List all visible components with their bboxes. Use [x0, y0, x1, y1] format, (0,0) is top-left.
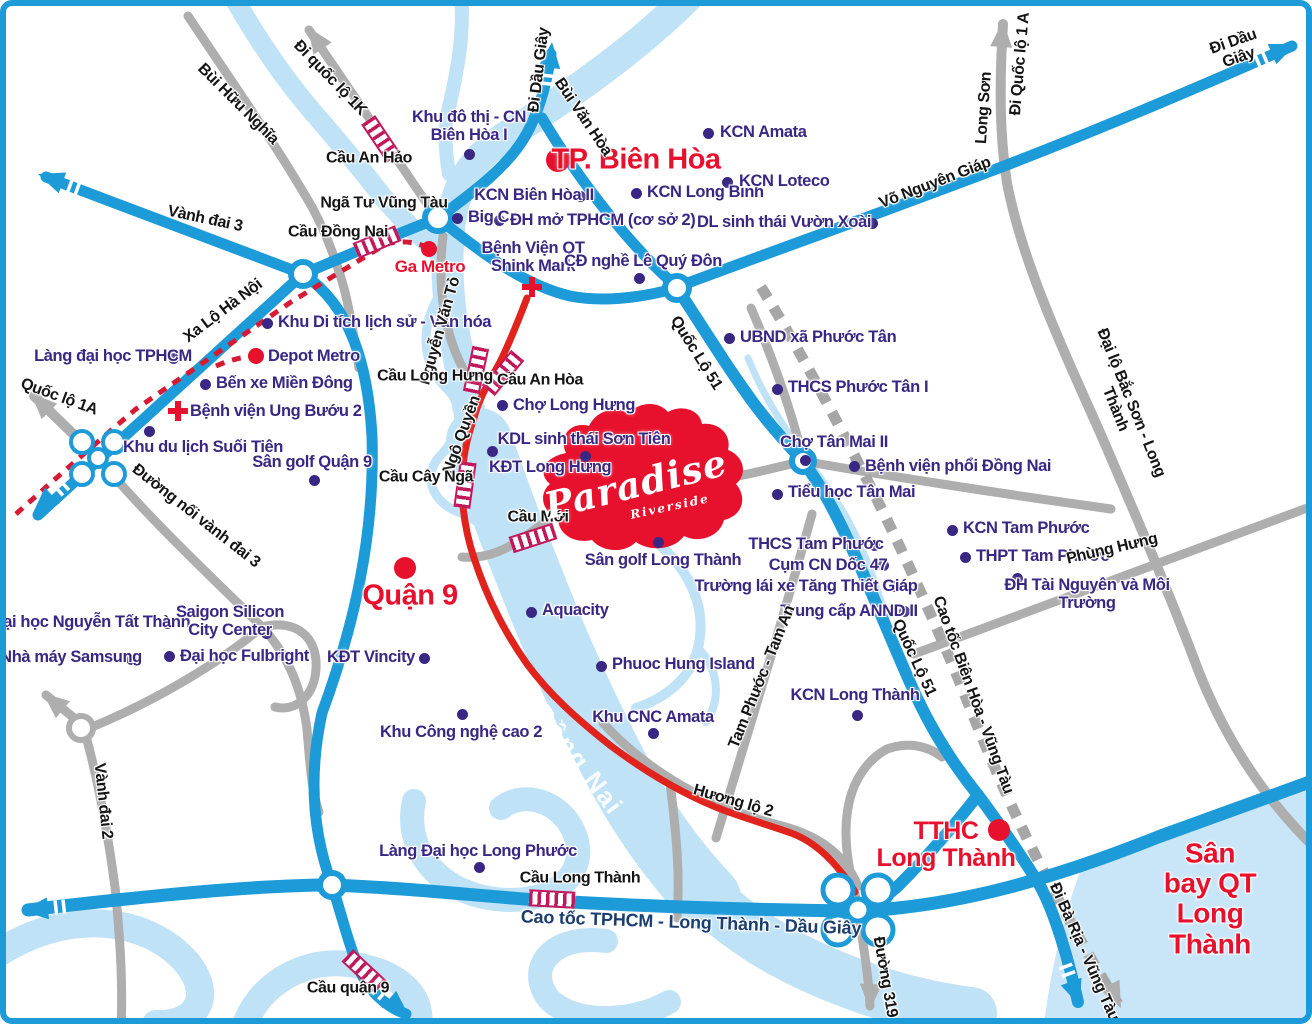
map-graphic	[6, 6, 1306, 1018]
airport-area	[1044, 772, 1306, 1018]
paradise-logo-shape	[543, 404, 743, 550]
map-canvas: Khu đô thị - CN Biên Hòa IKCN AmataKCN B…	[0, 0, 1312, 1024]
roundabout	[69, 716, 93, 740]
